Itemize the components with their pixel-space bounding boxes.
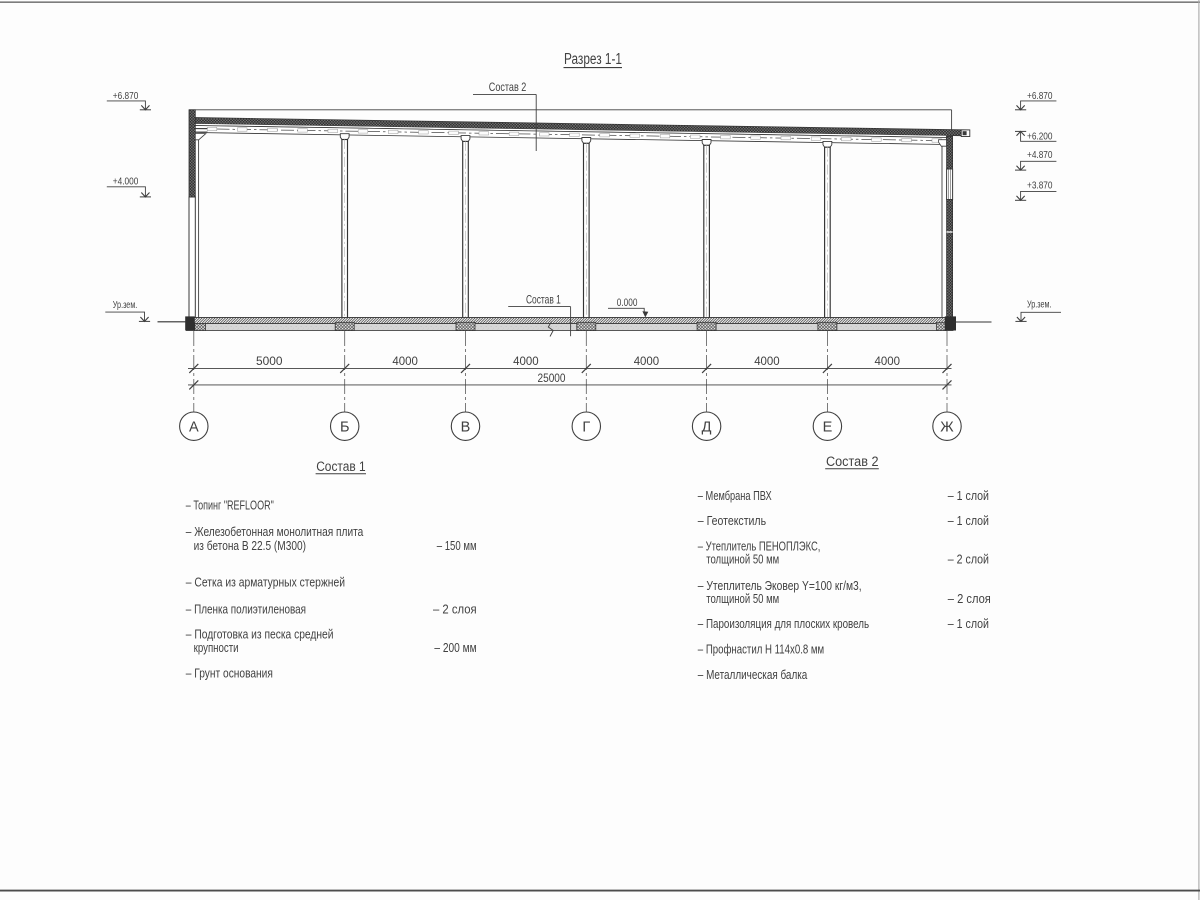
svg-text:– 1 слой: – 1 слой	[948, 616, 989, 631]
svg-text:4000: 4000	[513, 354, 539, 368]
svg-text:Разрез 1-1: Разрез 1-1	[564, 51, 622, 68]
svg-text:4000: 4000	[392, 354, 418, 368]
svg-text:– Пленка полиэтиленовая: – Пленка полиэтиленовая	[186, 601, 306, 616]
svg-text:А: А	[189, 419, 199, 435]
svg-text:– Грунт основания: – Грунт основания	[186, 665, 273, 680]
svg-text:4000: 4000	[634, 354, 660, 368]
svg-text:– 2 слой: – 2 слой	[948, 552, 989, 567]
svg-text:4000: 4000	[754, 354, 780, 368]
svg-text:– Металлическая балка: – Металлическая балка	[698, 667, 808, 682]
svg-text:крупности: крупности	[194, 640, 239, 655]
svg-text:+6.870: +6.870	[113, 90, 139, 102]
svg-text:Б: Б	[340, 419, 350, 435]
svg-text:– 2 слоя: – 2 слоя	[948, 591, 991, 606]
svg-text:– 2 слоя: – 2 слоя	[433, 601, 477, 616]
svg-text:из бетона В 22.5 (М300): из бетона В 22.5 (М300)	[194, 538, 306, 553]
svg-text:25000: 25000	[538, 371, 566, 385]
svg-text:– Топинг "REFLOOR": – Топинг "REFLOOR"	[186, 498, 274, 513]
svg-text:толщиной 50 мм: толщиной 50 мм	[706, 552, 779, 567]
svg-text:Состав 2: Состав 2	[826, 454, 879, 469]
svg-text:В: В	[461, 419, 471, 435]
svg-text:+6.200: +6.200	[1027, 130, 1053, 142]
svg-text:– 200 мм: – 200 мм	[434, 640, 476, 655]
svg-text:Ж: Ж	[940, 419, 954, 435]
svg-text:Состав 2: Состав 2	[489, 80, 527, 94]
svg-text:0.000: 0.000	[617, 297, 638, 309]
svg-text:+3.870: +3.870	[1027, 180, 1053, 192]
svg-text:толщиной 50 мм: толщиной 50 мм	[706, 591, 779, 606]
svg-text:– Геотекстиль: – Геотекстиль	[698, 513, 767, 528]
svg-text:– 1 слой: – 1 слой	[948, 488, 989, 503]
svg-text:Г: Г	[582, 419, 590, 435]
svg-text:Д: Д	[702, 419, 712, 435]
svg-text:4000: 4000	[875, 354, 901, 368]
svg-text:5000: 5000	[256, 354, 283, 368]
svg-text:Ур.зем.: Ур.зем.	[1027, 299, 1052, 311]
svg-text:Состав 1: Состав 1	[526, 293, 561, 307]
svg-text:– Профнастил Н 114х0.8 мм: – Профнастил Н 114х0.8 мм	[698, 641, 824, 656]
svg-text:Ур.зем.: Ур.зем.	[113, 299, 138, 311]
svg-text:– 150 мм: – 150 мм	[437, 538, 477, 553]
svg-text:Состав 1: Состав 1	[316, 459, 366, 474]
svg-text:– Пароизоляция для плоских кро: – Пароизоляция для плоских кровель	[698, 616, 870, 631]
svg-text:+6.870: +6.870	[1027, 90, 1053, 102]
svg-text:– Сетка из арматурных стержней: – Сетка из арматурных стержней	[186, 575, 345, 590]
svg-text:– 1 слой: – 1 слой	[948, 513, 989, 528]
svg-text:Е: Е	[823, 419, 833, 435]
svg-text:– Мембрана ПВХ: – Мембрана ПВХ	[698, 488, 772, 503]
svg-text:+4.870: +4.870	[1027, 149, 1053, 161]
svg-text:+4.000: +4.000	[113, 176, 139, 188]
